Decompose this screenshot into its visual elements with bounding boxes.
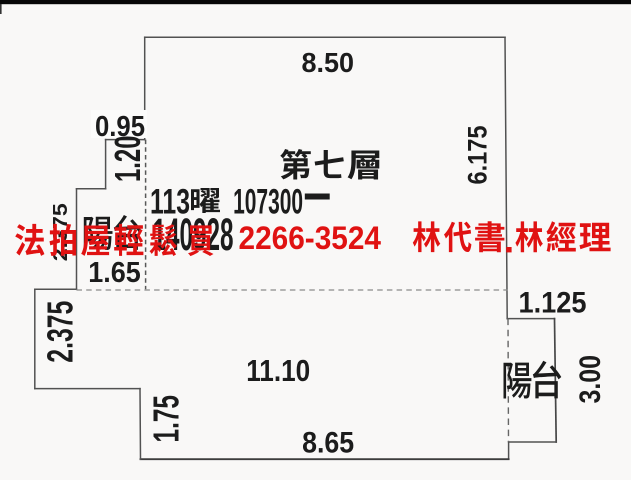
svg-text:2266-3524: 2266-3524 [239,220,382,256]
svg-text:1.20: 1.20 [107,136,148,183]
svg-text:6.175: 6.175 [463,126,493,185]
svg-text:2.375: 2.375 [40,301,81,363]
svg-text:8.65: 8.65 [302,427,354,460]
svg-text:1.125: 1.125 [519,286,587,319]
svg-text:11.10: 11.10 [246,353,310,388]
svg-text:1.65: 1.65 [88,257,141,289]
svg-text:107300: 107300 [233,182,303,221]
svg-text:1.75: 1.75 [146,395,187,443]
svg-text:3.00: 3.00 [574,355,607,404]
svg-text:8.50: 8.50 [302,47,355,78]
